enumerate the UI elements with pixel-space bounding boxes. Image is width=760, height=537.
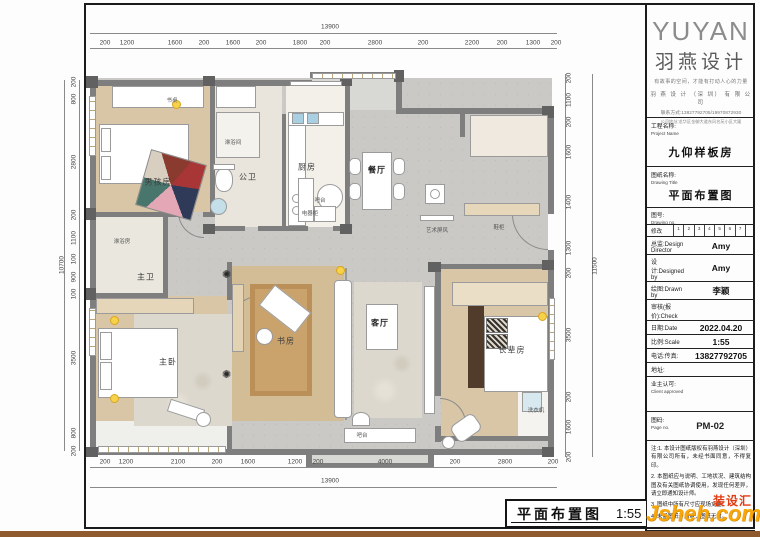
dim-label: 1200 (288, 459, 302, 466)
room-label: 电器柜 (302, 209, 319, 217)
revision-cell: 6 (724, 225, 734, 236)
room-label: 客厅 (371, 318, 389, 329)
client-approved-section: 业主认可:Client approved (647, 377, 755, 412)
ceiling-fan-icon: ✺ (222, 270, 231, 281)
brand-logo-en: YUYAN (647, 18, 755, 44)
revision-cell: 3 (694, 225, 704, 236)
revision-label: 修改 (647, 225, 673, 236)
revision-cell (745, 225, 755, 236)
tb-row-value: Amy (687, 237, 755, 254)
tb-row-2: 绘图:Drawn by李颖 (647, 282, 755, 300)
dim-total-bottom: 13900 (321, 478, 339, 485)
revision-section: 修改 1234567 (647, 225, 755, 237)
ceiling-fan-icon: ✺ (222, 370, 231, 381)
dim-label: 200 (71, 77, 78, 88)
tb-row-6: 电话:传真:13827792705 (647, 349, 755, 363)
drawing-sheet: ✺ ✺ 13900 (0, 0, 760, 537)
dim-label: 2100 (171, 459, 185, 466)
tb-row-7: 地址: (647, 363, 755, 377)
tb-row-value: 1:55 (687, 335, 755, 348)
tb-note: 注:1. 本设计图纸版权有羽燕设计（深圳）有限公司所有，未经书面同意，不得复印。 (651, 445, 751, 470)
dim-label: 200 (212, 459, 223, 466)
room-label: 艺术屏风 (426, 226, 448, 234)
revision-cell: 5 (714, 225, 724, 236)
dim-label: 200 (100, 459, 111, 466)
dim-label: 200 (71, 446, 78, 457)
drawing-title-label-en: Drawing Title (651, 180, 751, 185)
downlight (336, 266, 345, 275)
room-label: 书桌 (166, 96, 177, 104)
revision-cell: 4 (704, 225, 714, 236)
dim-label: 1100 (71, 231, 78, 245)
room-label: 淋浴间 (225, 138, 242, 146)
page-no-section: 图码:Page no. PM-02 (647, 412, 755, 441)
tb-row-label: 设计: (651, 260, 659, 275)
room-label: 厨房 (298, 162, 316, 173)
drawing-title-text: 平面布置图 (517, 504, 602, 524)
dim-label: 2800 (498, 459, 512, 466)
watermark: 装设汇 Jsheh.com (640, 492, 758, 532)
logo-block: YUYAN 羽燕设计 有故事的空间，才能有打动人心的力量 羽 燕 设 计 （深 … (647, 4, 755, 118)
tb-row-label-en: Scale (665, 340, 680, 346)
tb-row-value: 2022.04.20 (687, 321, 755, 334)
dim-label: 1300 (566, 241, 573, 255)
dim-label: 3500 (71, 351, 78, 365)
dim-label: 200 (566, 117, 573, 128)
dim-total-top: 13900 (321, 24, 339, 31)
drawing-no-section: 图号:Drawing no. (647, 208, 755, 225)
dim-line (79, 80, 80, 451)
dim-label: 200 (320, 40, 331, 47)
dim-label: 200 (256, 40, 267, 47)
dim-label: 200 (566, 452, 573, 463)
tb-row-value: 13827792705 (687, 349, 755, 362)
page-no-value: PM-02 (669, 415, 751, 437)
dim-label: 3500 (566, 328, 573, 342)
dim-label: 200 (566, 73, 573, 84)
tb-row-value: 李颖 (687, 282, 755, 299)
tb-row-label: 地址: (651, 368, 665, 374)
room-label: 主卧 (159, 357, 177, 368)
dim-label: 1300 (526, 40, 540, 47)
tb-row-1: 设计:Designed byAmy (647, 255, 755, 282)
dim-label: 800 (71, 94, 78, 105)
dim-label: 100 (71, 289, 78, 300)
tb-rows: 总监:Design DirectorAmy设计:Designed byAmy绘图… (647, 237, 755, 377)
tb-row-value (687, 300, 755, 320)
dim-label: 1600 (226, 40, 240, 47)
dim-label: 200 (313, 459, 324, 466)
room-label: 吧台 (356, 431, 367, 439)
dim-label: 900 (71, 272, 78, 283)
tb-row-label: 电话: (651, 354, 665, 360)
dim-label: 200 (418, 40, 429, 47)
client-approved-label: 业主认可: (651, 379, 751, 388)
tb-row-3: 审核(报价):Check (647, 300, 755, 321)
dim-label: 200 (497, 40, 508, 47)
room-label: 鞋柜 (493, 223, 504, 231)
dim-label: 2800 (71, 155, 78, 169)
company-contact: 联系方式:13827792705/19970872930 (647, 109, 755, 116)
drawing-title-label: 图纸名称: (651, 170, 751, 179)
room-label: 吧台 (314, 196, 325, 204)
room-label: 主卫 (137, 272, 155, 283)
dim-label: 1800 (293, 40, 307, 47)
downlight (110, 316, 119, 325)
revision-cells: 1234567 (673, 225, 755, 236)
drawing-title-section: 图纸名称:Drawing Title 平面布置图 (647, 167, 755, 208)
room-label: 书房 (277, 336, 295, 347)
downlight (538, 312, 547, 321)
company-name: 羽 燕 设 计 （深 圳） 有 限 公 司 (647, 90, 755, 106)
dim-label: 200 (199, 40, 210, 47)
revision-cell: 1 (673, 225, 683, 236)
room-label: 长辈房 (499, 345, 526, 356)
title-underline (511, 522, 642, 523)
tb-row-label: 比例: (651, 340, 665, 346)
tb-row-label: 日期: (651, 326, 665, 332)
dim-label: 1200 (119, 459, 133, 466)
tb-row-label-en: Check (661, 314, 678, 320)
project-label: 工程名称: (651, 121, 751, 130)
dim-label: 1600 (566, 145, 573, 159)
dim-label: 200 (71, 210, 78, 221)
drawing-title-value: 平面布置图 (647, 187, 755, 203)
page-no-label-en: Page no. (651, 425, 669, 430)
tb-row-4: 日期:Date2022.04.20 (647, 321, 755, 335)
tb-row-label-en: Date (665, 326, 678, 332)
room-label: 公卫 (239, 172, 257, 183)
project-name-section: 工程名称:Project Name 九仰样板房 (647, 118, 755, 167)
project-label-en: Project Name (651, 131, 751, 136)
dim-label: 1400 (566, 195, 573, 209)
tb-row-value (687, 363, 755, 376)
tb-row-label-en: 传真: (665, 354, 679, 360)
brand-logo-cn: 羽燕设计 (647, 47, 755, 74)
revision-cell: 2 (683, 225, 693, 236)
dim-label: 1600 (241, 459, 255, 466)
tb-row-0: 总监:Design DirectorAmy (647, 237, 755, 255)
dim-total-right: 11500 (592, 257, 599, 275)
brand-slogan: 有故事的空间，才能有打动人心的力量 (647, 78, 755, 85)
drawing-no-label: 图号: (651, 210, 751, 219)
dim-label: 4000 (378, 459, 392, 466)
title-block: YUYAN 羽燕设计 有故事的空间，才能有打动人心的力量 羽 燕 设 计 （深 … (647, 4, 755, 531)
room-label: 男孩房 (145, 177, 172, 188)
page-no-label: 图码: (651, 415, 669, 424)
room-label: 洗衣机 (528, 406, 545, 414)
drawing-title-box: 平面布置图 1:55 (505, 499, 646, 528)
dim-label: 800 (71, 428, 78, 439)
dim-label: 1600 (168, 40, 182, 47)
client-approved-label-en: Client approved (651, 389, 751, 394)
dim-label: 2800 (368, 40, 382, 47)
dim-label: 200 (566, 392, 573, 403)
tb-row-value: Amy (687, 255, 755, 281)
project-name-value: 九仰样板房 (647, 144, 755, 160)
dim-label: 200 (100, 40, 111, 47)
drawing-scale-text: 1:55 (616, 506, 641, 521)
dim-label: 1100 (566, 93, 573, 107)
dim-total-left: 10700 (59, 256, 66, 274)
downlight (110, 394, 119, 403)
dim-label: 100 (71, 254, 78, 265)
dim-label: 200 (450, 459, 461, 466)
dim-label: 200 (566, 268, 573, 279)
dim-label: 1600 (566, 420, 573, 434)
revision-cell: 7 (735, 225, 745, 236)
dim-label: 1200 (120, 40, 134, 47)
watermark-site: Jsheh.com (646, 501, 760, 527)
tb-row-5: 比例:Scale1:55 (647, 335, 755, 349)
dim-label: 2200 (465, 40, 479, 47)
dim-label: 200 (551, 40, 562, 47)
dim-label: 200 (548, 459, 559, 466)
room-label: 淋浴房 (114, 237, 131, 245)
room-label: 餐厅 (368, 165, 386, 176)
